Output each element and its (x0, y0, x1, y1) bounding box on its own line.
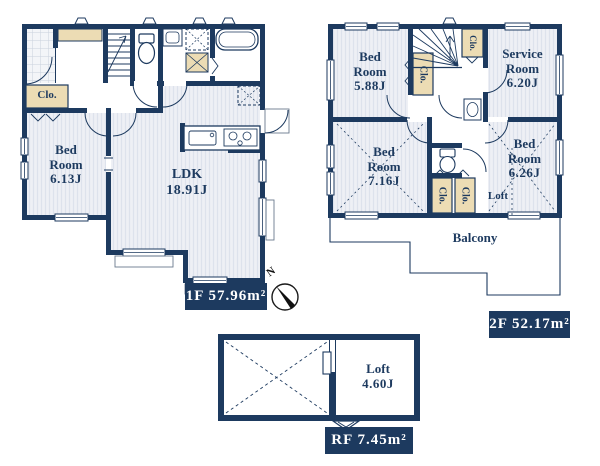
room-name-line: Room (488, 152, 561, 167)
room-name-line: Bed (488, 137, 561, 152)
room-size: 6.20J (486, 76, 559, 91)
washbasin-1f-icon (163, 29, 182, 46)
room-size: 4.60J (340, 377, 416, 392)
bathtub-icon (216, 29, 258, 50)
closet-text: Clo. (26, 89, 68, 101)
toilet-2f-icon (440, 149, 455, 173)
loft-2f-label: Loft (480, 190, 516, 202)
room-name-line: Room (28, 158, 104, 173)
floor1-area-badge: 1F 57.96m² (185, 283, 267, 310)
closet-text: Clo. (418, 65, 429, 83)
utility-box-icon (186, 53, 208, 72)
bedroom-1f-label: Bed Room 6.13J (28, 143, 104, 187)
entrance-tile-floor (27, 29, 56, 83)
compass-icon (272, 284, 298, 310)
floor-area-text: 1F 57.96m² (186, 288, 267, 305)
loft-hatch-door (323, 352, 331, 374)
vent-2f (443, 18, 456, 24)
bedroom3-2f-label: Bed Room 6.26J (488, 137, 561, 181)
room-size: 7.16J (346, 174, 422, 189)
room-name-line: Room (486, 62, 559, 77)
bedroom2-2f-label: Bed Room 7.16J (346, 145, 422, 189)
closet-2f-left-label: Clo. (413, 53, 433, 95)
loft-text: Loft (480, 190, 516, 202)
closet-text: Clo. (460, 187, 471, 205)
ldk-label: LDK 18.91J (147, 167, 227, 198)
toilet-1f-icon (139, 34, 155, 64)
balcony-text: Balcony (440, 231, 510, 246)
roof-area-badge: RF 7.45m² (325, 427, 413, 454)
room-name-line: Bed (28, 143, 104, 158)
bath-folding-door (212, 58, 218, 74)
closet-2f-bottom2-label: Clo. (455, 178, 475, 213)
loft-rf-label: Loft 4.60J (340, 362, 416, 391)
washing-machine-icon (186, 29, 208, 50)
room-name-line: Loft (340, 362, 416, 377)
floorplan-page: Bed Room 6.13J LDK 18.91J Clo. Bed Room … (0, 0, 600, 466)
stairs-1f-icon (105, 34, 130, 76)
room-size: 18.91J (147, 183, 227, 199)
room-name-line: Room (346, 160, 422, 175)
closet-1f-label: Clo. (26, 89, 68, 101)
room-name-line: Bed (332, 50, 408, 65)
floor2-area-badge: 2F 52.17m² (489, 311, 570, 338)
closet-2f-bottom1-label: Clo. (432, 178, 452, 213)
room-size: 5.88J (332, 79, 408, 94)
room-name-line: Bed (346, 145, 422, 160)
room-name-line: LDK (147, 167, 227, 183)
bedroom1-2f-label: Bed Room 5.88J (332, 50, 408, 94)
rf-divider-wall (329, 372, 336, 415)
balcony-label: Balcony (440, 231, 510, 246)
floor-area-text: 2F 52.17m² (489, 316, 570, 333)
shoe-cabinet (58, 29, 102, 41)
closet-2f-top-label: Clo. (462, 29, 483, 57)
room-name-line: Service (486, 47, 559, 62)
balcony-outline (330, 218, 560, 295)
kitchen-counter (184, 126, 260, 150)
closet-text: Clo. (468, 35, 478, 51)
service-room-label: Service Room 6.20J (486, 47, 559, 91)
washbasin-2f-icon (464, 99, 481, 120)
floor-area-text: RF 7.45m² (331, 432, 406, 449)
room-name-line: Room (332, 65, 408, 80)
room-size: 6.13J (28, 172, 104, 187)
vents-1f (75, 18, 235, 24)
closet-text: Clo. (437, 187, 448, 205)
room-size: 6.26J (488, 166, 561, 181)
